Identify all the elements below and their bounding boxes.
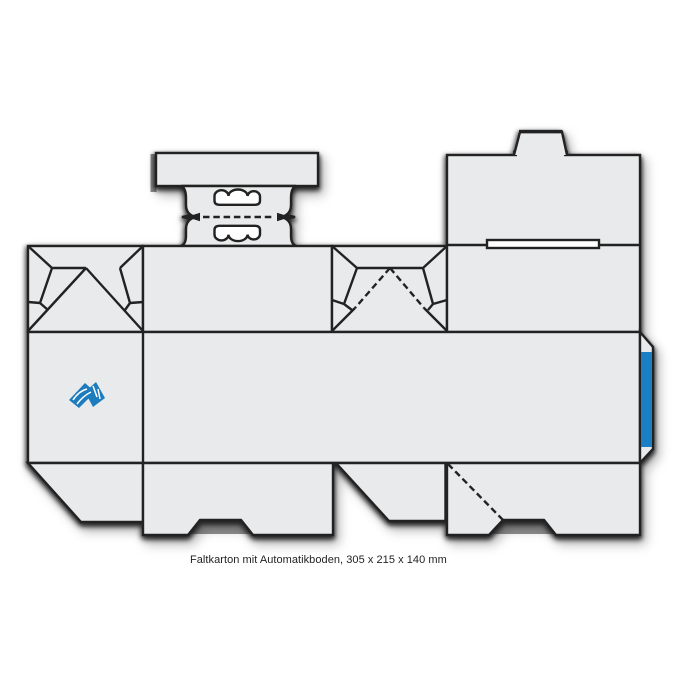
svg-text:Faltkarton mit Automatikboden,: Faltkarton mit Automatikboden, 305 x 215… bbox=[190, 554, 447, 566]
